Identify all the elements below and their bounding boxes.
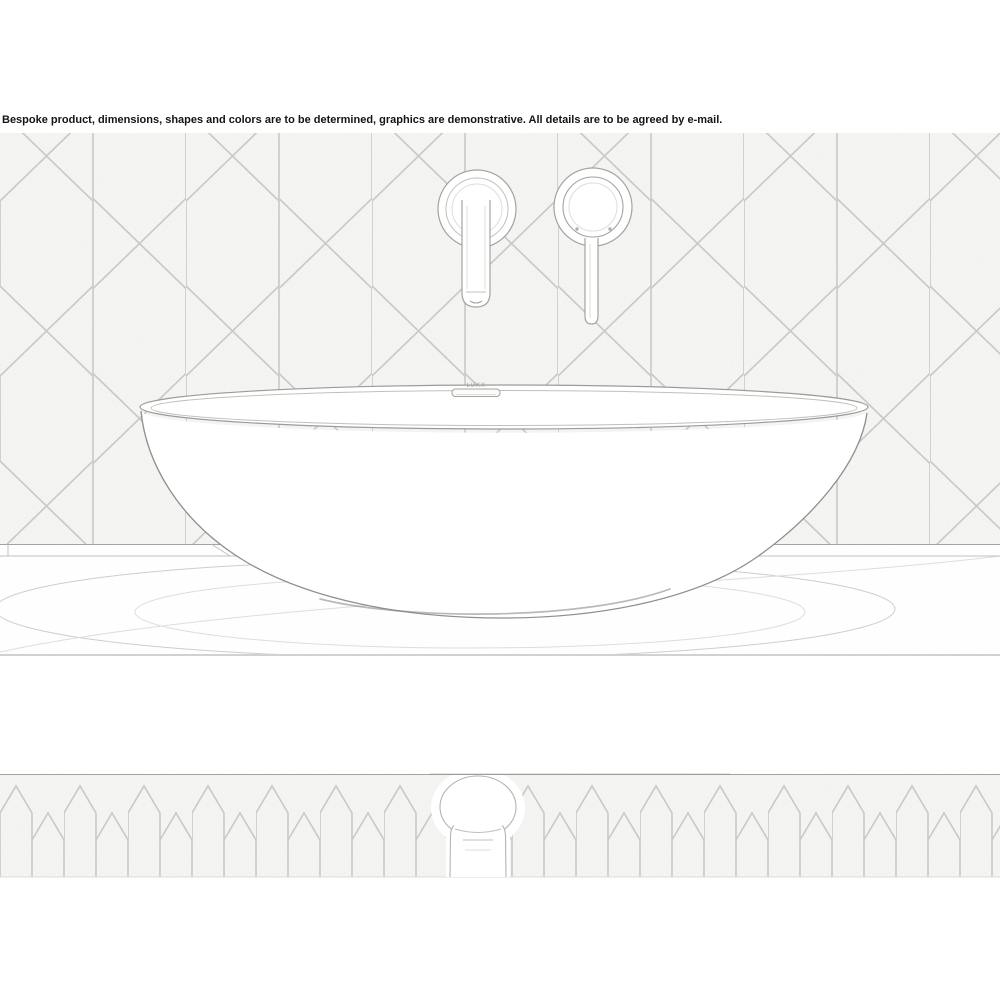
- product-photo: LUXX: [0, 0, 1000, 1000]
- basin-rim: [140, 385, 868, 429]
- product-page: Bespoke product, dimensions, shapes and …: [0, 0, 1000, 1000]
- faucet-handle-rosette: [554, 168, 632, 246]
- faucet-spout: [462, 200, 490, 307]
- handle-screw-left: [575, 227, 578, 230]
- handle-screw-right: [608, 227, 611, 230]
- brand-mark: LUXX: [466, 381, 485, 389]
- basin-overflow: [452, 389, 500, 397]
- counter-apron: [0, 655, 1000, 775]
- faucet-handle-lever: [585, 238, 598, 324]
- apron-face: [0, 656, 1000, 774]
